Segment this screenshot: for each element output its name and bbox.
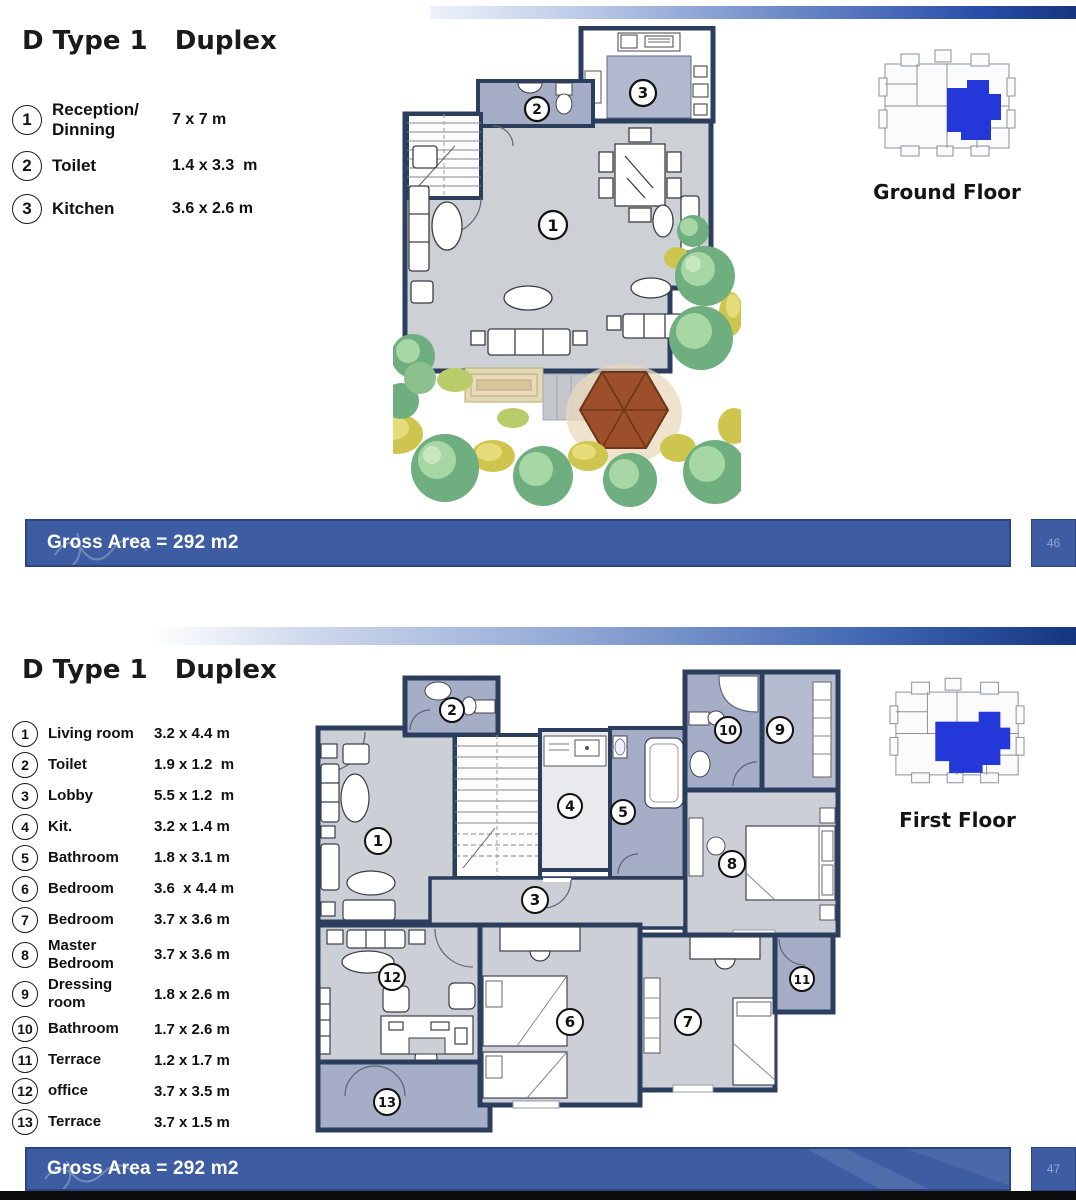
legend-number-badge: 3 <box>12 783 38 809</box>
legend-item: 5 Bathroom 1.8 x 3.1 m <box>12 844 302 871</box>
legend-first-floor: 1 Living room 3.2 x 4.4 m 2 Toilet 1.9 x… <box>12 720 302 1140</box>
legend-item: 6 Bedroom 3.6 x 4.4 m <box>12 875 302 902</box>
legend-number-badge: 12 <box>12 1078 38 1104</box>
legend-item: 11 Terrace 1.2 x 1.7 m <box>12 1047 302 1074</box>
legend-item: 7 Bedroom 3.7 x 3.6 m <box>12 906 302 933</box>
room-number-4: 4 <box>558 794 582 818</box>
legend-number-badge: 3 <box>12 194 42 224</box>
legend-label: Bathroom <box>48 1020 146 1038</box>
page-number: 47 <box>1047 1162 1060 1176</box>
legend-dimension: 3.7 x 3.6 m <box>154 911 230 928</box>
lobby <box>430 878 685 928</box>
legend-dimension: 1.8 x 2.6 m <box>154 986 230 1003</box>
legend-number-badge: 6 <box>12 876 38 902</box>
page-number-box: 46 <box>1031 519 1076 567</box>
legend-dimension: 3.2 x 4.4 m <box>154 725 230 742</box>
first-floor-plan: 2 1 4 5 10 9 8 3 <box>313 668 841 1138</box>
building-minimap-ground <box>876 44 1018 166</box>
svg-text:5: 5 <box>618 805 628 821</box>
room-number-2: 2 <box>440 698 464 722</box>
legend-label: Master Bedroom <box>48 937 146 972</box>
legend-dimension: 7 x 7 m <box>172 111 226 129</box>
legend-item: 1 Living room 3.2 x 4.4 m <box>12 720 302 747</box>
legend-dimension: 3.7 x 1.5 m <box>154 1114 230 1131</box>
legend-label: Bedroom <box>48 911 146 929</box>
building-minimap-first <box>888 670 1026 795</box>
room-number-1: 1 <box>539 211 567 239</box>
room-number-6: 6 <box>557 1009 583 1035</box>
svg-text:9: 9 <box>775 721 785 739</box>
floor-label-first: First Floor <box>880 808 1035 832</box>
brochure-page: D Type 1 Duplex 1 Reception/ Dinning 7 x… <box>0 0 1076 1200</box>
legend-number-badge: 7 <box>12 907 38 933</box>
legend-dimension: 3.6 x 4.4 m <box>154 880 234 897</box>
legend-item: 1 Reception/ Dinning 7 x 7 m <box>12 100 322 140</box>
svg-text:13: 13 <box>378 1096 396 1111</box>
legend-dimension: 3.7 x 3.5 m <box>154 1083 230 1100</box>
legend-label: Lobby <box>48 787 146 805</box>
page-title: D Type 1 Duplex <box>22 26 277 56</box>
svg-text:3: 3 <box>638 84 648 102</box>
legend-item: 12 office 3.7 x 3.5 m <box>12 1078 302 1105</box>
svg-text:6: 6 <box>565 1013 575 1031</box>
legend-ground-floor: 1 Reception/ Dinning 7 x 7 m 2 Toilet 1.… <box>12 100 322 235</box>
room-number-3: 3 <box>522 887 548 913</box>
page-title: D Type 1 Duplex <box>22 655 277 685</box>
master-bedroom <box>685 790 838 937</box>
bottom-black-strip <box>0 1191 1076 1200</box>
legend-dimension: 1.4 x 3.3 m <box>172 157 257 175</box>
bedroom-7 <box>640 935 775 1092</box>
legend-item: 10 Bathroom 1.7 x 2.6 m <box>12 1016 302 1043</box>
gross-area-text: Gross Area = 292 m2 <box>27 532 239 554</box>
svg-text:12: 12 <box>383 971 401 986</box>
legend-dimension: 5.5 x 1.2 m <box>154 787 234 804</box>
room-number-12: 12 <box>379 964 405 990</box>
svg-text:2: 2 <box>447 703 457 719</box>
room-number-11: 11 <box>790 967 814 991</box>
legend-number-badge: 1 <box>12 721 38 747</box>
legend-number-badge: 13 <box>12 1109 38 1135</box>
legend-item: 9 Dressing room 1.8 x 2.6 m <box>12 976 302 1011</box>
legend-label: Dressing room <box>48 976 146 1011</box>
legend-number-badge: 8 <box>12 942 38 968</box>
page-number-box: 47 <box>1031 1147 1076 1191</box>
svg-text:4: 4 <box>565 799 575 815</box>
svg-text:2: 2 <box>532 102 542 118</box>
legend-number-badge: 2 <box>12 752 38 778</box>
legend-label: Toilet <box>48 756 146 774</box>
legend-number-badge: 10 <box>12 1016 38 1042</box>
page-number: 46 <box>1047 536 1060 550</box>
legend-dimension: 3.6 x 2.6 m <box>172 200 253 218</box>
gross-area-bar-first: Gross Area = 292 m2 <box>25 1147 1011 1191</box>
room-number-8: 8 <box>719 851 745 877</box>
room-number-5: 5 <box>611 800 635 824</box>
svg-text:10: 10 <box>719 724 737 739</box>
legend-dimension: 3.2 x 1.4 m <box>154 818 230 835</box>
legend-item: 2 Toilet 1.9 x 1.2 m <box>12 751 302 778</box>
legend-dimension: 3.7 x 3.6 m <box>154 946 230 963</box>
legend-dimension: 1.8 x 3.1 m <box>154 849 230 866</box>
legend-label: Terrace <box>48 1113 146 1131</box>
kitchen-room <box>581 28 713 121</box>
legend-number-badge: 5 <box>12 845 38 871</box>
gross-area-bar-ground: Gross Area = 292 m2 <box>25 519 1011 567</box>
floor-label-ground: Ground Floor <box>862 180 1032 204</box>
legend-item: 8 Master Bedroom 3.7 x 3.6 m <box>12 937 302 972</box>
legend-number-badge: 4 <box>12 814 38 840</box>
svg-text:3: 3 <box>530 891 540 909</box>
legend-item: 13 Terrace 3.7 x 1.5 m <box>12 1109 302 1136</box>
legend-label: Terrace <box>48 1051 146 1069</box>
ground-floor-plan: 1 2 3 <box>393 26 741 511</box>
staircase <box>455 735 540 878</box>
legend-number-badge: 1 <box>12 105 42 135</box>
legend-label: Bedroom <box>48 880 146 898</box>
svg-text:8: 8 <box>727 855 737 873</box>
legend-label: Kit. <box>48 818 146 836</box>
svg-text:1: 1 <box>373 832 383 850</box>
legend-label: office <box>48 1082 146 1100</box>
legend-item: 3 Lobby 5.5 x 1.2 m <box>12 782 302 809</box>
legend-label: Living room <box>48 725 146 743</box>
legend-label: Toilet <box>52 156 164 176</box>
legend-number-badge: 2 <box>12 151 42 181</box>
gross-area-text: Gross Area = 292 m2 <box>27 1158 239 1180</box>
legend-label: Kitchen <box>52 199 164 219</box>
room-number-2: 2 <box>525 97 549 121</box>
svg-text:11: 11 <box>794 973 811 987</box>
room-number-7: 7 <box>675 1009 701 1035</box>
header-gradient-stripe <box>430 6 1076 19</box>
legend-item: 3 Kitchen 3.6 x 2.6 m <box>12 192 322 226</box>
legend-number-badge: 9 <box>12 981 38 1007</box>
svg-text:1: 1 <box>547 216 558 235</box>
legend-dimension: 1.9 x 1.2 m <box>154 756 234 773</box>
room-number-13: 13 <box>374 1089 400 1115</box>
legend-dimension: 1.2 x 1.7 m <box>154 1052 230 1069</box>
legend-item: 4 Kit. 3.2 x 1.4 m <box>12 813 302 840</box>
room-number-10: 10 <box>715 717 741 743</box>
header-gradient-stripe <box>150 627 1076 645</box>
terrace-13 <box>318 1062 490 1130</box>
legend-dimension: 1.7 x 2.6 m <box>154 1021 230 1038</box>
legend-number-badge: 11 <box>12 1047 38 1073</box>
room-number-1: 1 <box>365 828 391 854</box>
svg-text:7: 7 <box>683 1013 693 1031</box>
legend-item: 2 Toilet 1.4 x 3.3 m <box>12 149 322 183</box>
room-number-3: 3 <box>630 80 656 106</box>
legend-label: Reception/ Dinning <box>52 100 164 140</box>
room-number-9: 9 <box>767 717 793 743</box>
legend-label: Bathroom <box>48 849 146 867</box>
office-room <box>318 925 490 1069</box>
